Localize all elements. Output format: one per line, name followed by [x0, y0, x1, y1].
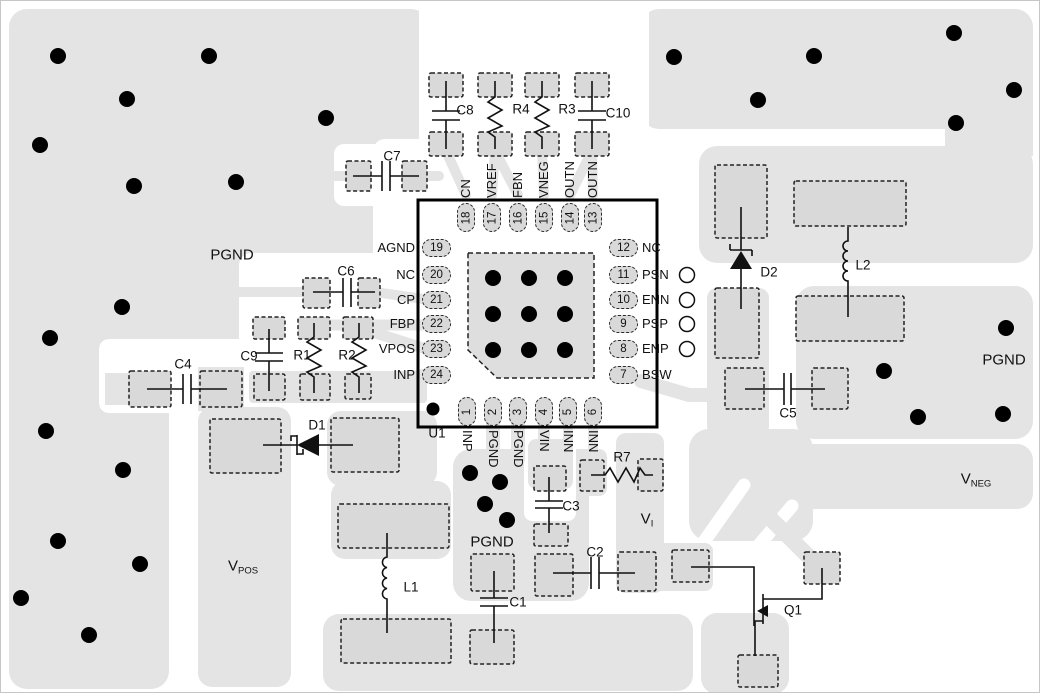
net-label-text: V: [228, 558, 238, 575]
component-pad: [618, 552, 656, 591]
pin-number: 24: [430, 369, 443, 381]
pin-number: 13: [587, 211, 599, 224]
via: [521, 306, 537, 322]
via: [81, 627, 97, 643]
pin-pad-7: 7: [609, 366, 638, 384]
net-label-text: PGND: [982, 352, 1025, 369]
component-label-R4: R4: [512, 102, 529, 117]
component-label-C5: C5: [779, 406, 796, 421]
net-label-pgnd-island: PGND: [470, 534, 513, 553]
pin-number: 2: [487, 408, 499, 414]
via: [946, 25, 962, 41]
pin-pad-18: 18: [457, 203, 475, 232]
via: [38, 423, 54, 439]
component-label-R7: R7: [613, 450, 630, 465]
pin-label-VIN-4: VIN: [537, 430, 552, 452]
pin-pad-22: 22: [422, 315, 451, 333]
pin-pad-6: 6: [584, 397, 602, 426]
pin-label-PGND-3: PGND: [511, 430, 526, 468]
component-label-R3: R3: [558, 102, 575, 117]
via: [995, 406, 1011, 422]
via: [462, 465, 478, 481]
pin-pad-2: 2: [484, 397, 502, 426]
pin-number: 21: [430, 294, 443, 306]
via: [750, 92, 766, 108]
pcb-layout-board: 19AGND20NC21CP22FBP23VPOS24INP12NC11PSN1…: [0, 0, 1040, 693]
via: [806, 48, 822, 64]
pin-label-ENP: ENP: [642, 341, 669, 356]
pin-label-CP: CP: [301, 292, 415, 307]
via: [521, 342, 537, 358]
net-label-vpos: VPOS: [228, 558, 258, 577]
via: [557, 306, 573, 322]
via: [42, 330, 58, 346]
component-label-D2: D2: [760, 265, 777, 280]
pin-number: 16: [512, 211, 524, 224]
pin-pad-5: 5: [559, 397, 577, 426]
test-point-circle-ENN: [680, 293, 695, 308]
test-point-circle-PSP: [680, 317, 695, 332]
component-label-C8: C8: [456, 103, 473, 118]
component-label-L2: L2: [855, 258, 870, 273]
via: [13, 590, 29, 606]
pin-pad-16: 16: [509, 203, 527, 232]
via: [1006, 82, 1022, 98]
pin-label-AGND: AGND: [301, 240, 415, 255]
pin-label-NC: NC: [301, 267, 415, 282]
pin-number: 14: [564, 211, 576, 224]
component-pad: [535, 554, 573, 596]
via: [119, 91, 135, 107]
via: [477, 496, 493, 512]
component-pad: [796, 296, 904, 341]
via: [50, 533, 66, 549]
component-pad: [534, 524, 568, 546]
component-label-C7: C7: [383, 149, 400, 164]
via: [499, 512, 515, 528]
component-label-C4: C4: [174, 357, 191, 372]
pin-pad-12: 12: [609, 239, 638, 257]
net-label-text: V: [641, 511, 651, 528]
pin-pad-13: 13: [584, 203, 602, 232]
pin-label-OUTN-14: OUTN: [562, 161, 577, 198]
pin-number: 17: [486, 211, 498, 224]
net-label-pgnd-top-left: PGND: [210, 247, 253, 266]
pin-label-PSN: PSN: [642, 267, 669, 282]
pin-label-OUTN-13: OUTN: [585, 161, 600, 198]
pin-label-VNEG-15: VNEG: [536, 161, 551, 198]
via: [228, 174, 244, 190]
component-label-R1: R1: [293, 348, 310, 363]
pin-number: 4: [538, 408, 550, 414]
pin-number: 7: [620, 369, 626, 381]
pin-label-BSW: BSW: [642, 367, 672, 382]
via: [557, 270, 573, 286]
pin-pad-24: 24: [422, 366, 451, 384]
pin-pad-21: 21: [422, 291, 451, 309]
via: [201, 48, 217, 64]
pin-number: 3: [512, 408, 524, 414]
pin-pad-15: 15: [535, 203, 553, 232]
pin-label-CN-18: CN: [458, 179, 473, 198]
pin-label-PGND-2: PGND: [486, 430, 501, 468]
component-label-C2: C2: [586, 545, 603, 560]
pin-label-PSP: PSP: [642, 316, 668, 331]
pin-pad-9: 9: [609, 315, 638, 333]
pin-number: 18: [460, 211, 472, 224]
net-label-text: PGND: [210, 247, 253, 264]
net-label-subscript: POS: [238, 566, 258, 577]
component-pad: [738, 655, 778, 687]
pin-label-VPOS: VPOS: [301, 341, 415, 356]
net-label-pgnd-right: PGND: [982, 352, 1025, 371]
pin-pad-1: 1: [458, 397, 476, 426]
component-pad: [715, 288, 759, 358]
via: [557, 342, 573, 358]
pin-number: 12: [617, 242, 630, 254]
pin-number: 19: [430, 242, 443, 254]
via: [115, 462, 131, 478]
pin-number: 11: [618, 269, 630, 281]
test-points: [680, 268, 695, 357]
component-pad: [341, 619, 451, 663]
component-label-C1: C1: [509, 595, 526, 610]
via: [114, 299, 130, 315]
component-label-C10: C10: [606, 106, 631, 121]
component-label-D1: D1: [308, 418, 325, 433]
component-pad: [470, 630, 514, 664]
pin-label-FBP: FBP: [301, 316, 415, 331]
via: [126, 178, 142, 194]
via: [32, 137, 48, 153]
component-pad: [794, 181, 906, 226]
via: [948, 115, 964, 131]
via: [876, 363, 892, 379]
via: [485, 306, 501, 322]
pin-number: 23: [430, 343, 443, 355]
pin-label-VREF-17: VREF: [484, 163, 499, 198]
pin-label-INP: INP: [301, 367, 415, 382]
pin-pad-19: 19: [422, 239, 451, 257]
pin-number: 8: [620, 343, 626, 355]
net-label-vneg: VNEG: [961, 471, 992, 490]
component-label-C6: C6: [337, 264, 354, 279]
pin-number: 6: [587, 408, 599, 414]
via: [492, 474, 508, 490]
component-label-C9: C9: [240, 349, 257, 364]
via: [521, 270, 537, 286]
net-label-subscript: NEG: [971, 479, 992, 490]
pin-pad-20: 20: [422, 266, 451, 284]
component-pad: [210, 419, 281, 473]
via: [485, 270, 501, 286]
pin-pad-3: 3: [509, 397, 527, 426]
pin-label-FBN-16: FBN: [510, 172, 525, 198]
via: [132, 556, 148, 572]
via: [50, 48, 66, 64]
component-pad: [338, 504, 449, 548]
via: [666, 49, 682, 65]
pin-pad-11: 11: [609, 266, 638, 284]
net-label-text: V: [961, 471, 971, 488]
net-label-subscript: I: [651, 519, 654, 530]
net-label-text: PGND: [470, 534, 513, 551]
pin-number: 1: [461, 408, 473, 414]
component-label-R2: R2: [338, 348, 355, 363]
pin-pad-14: 14: [561, 203, 579, 232]
component-pad: [534, 466, 566, 491]
component-label-C3: C3: [562, 499, 579, 514]
component-pad: [672, 550, 709, 582]
component-label-L1: L1: [403, 580, 418, 595]
pin-pad-4: 4: [535, 397, 553, 426]
via: [485, 342, 501, 358]
via: [910, 409, 926, 425]
pin-number: 15: [538, 211, 550, 224]
pin-pad-10: 10: [609, 291, 638, 309]
via: [427, 403, 440, 416]
component-label-U1: U1: [428, 426, 445, 441]
pin-pad-23: 23: [422, 340, 451, 358]
pin-pad-17: 17: [483, 203, 501, 232]
component-label-Q1: Q1: [784, 603, 802, 618]
via: [318, 110, 334, 126]
pin-label-INN-6: INN: [586, 430, 601, 452]
pin-label-NC: NC: [642, 240, 661, 255]
component-pad: [471, 554, 514, 591]
test-point-circle-ENP: [680, 342, 695, 357]
pin-number: 9: [620, 318, 626, 330]
via: [998, 320, 1014, 336]
test-point-circle-PSN: [680, 268, 695, 283]
pin-number: 22: [430, 318, 443, 330]
net-label-vi: VI: [641, 511, 654, 530]
pin-label-INN-5: INN: [561, 430, 576, 452]
pin-label-ENN: ENN: [642, 292, 669, 307]
pin-number: 5: [562, 408, 574, 414]
pin-label-INP-1: INP: [460, 430, 475, 452]
pin-number: 10: [617, 294, 630, 306]
pin-number: 20: [430, 269, 443, 281]
pin-pad-8: 8: [609, 340, 638, 358]
